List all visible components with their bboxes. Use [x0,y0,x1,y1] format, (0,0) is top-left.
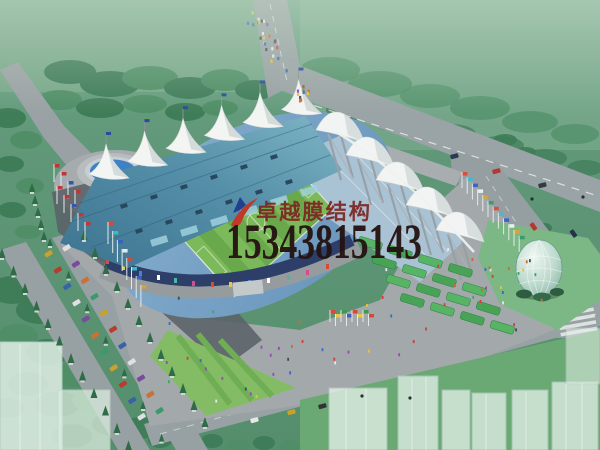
pedestrian [526,260,528,263]
ghost-building [58,390,110,450]
tree-canopy [253,436,275,450]
flag [463,172,468,176]
flag [79,213,84,217]
flag [504,218,509,222]
pedestrian [366,304,368,307]
pedestrian [256,395,258,398]
pedestrian [485,268,487,271]
pedestrian [368,350,370,353]
ghost-building [552,382,598,450]
banner-flag [174,278,177,283]
pedestrian [508,267,510,270]
flag [509,224,514,228]
pedestrian [289,371,291,374]
flag [478,189,483,193]
pedestrian [489,266,491,269]
banner-flag [211,282,214,287]
flag [358,314,363,318]
pedestrian [261,346,263,349]
banner-flag [157,275,160,280]
flag [132,267,137,271]
flag [515,230,520,234]
pedestrian [471,258,473,261]
ghost-building [472,393,506,450]
ghost-building [566,328,600,384]
banner-flag [306,270,309,275]
flag [123,249,128,253]
flag [342,310,347,314]
flag [127,258,132,262]
tree-canopy [10,131,42,149]
pedestrian [187,357,189,360]
pedestrian [454,284,456,287]
pedestrian [166,361,168,364]
pedestrian [529,259,531,262]
flag [76,190,81,194]
banner-flag [139,271,142,276]
stadium-rendering-scene: 卓越膜结构 15343815143 [0,0,600,450]
ghost-building [329,388,387,450]
flag [520,236,525,240]
flag [483,195,488,199]
pedestrian [444,303,446,306]
pedestrian [299,320,301,323]
pedestrian [413,340,415,343]
pedestrian [534,273,536,276]
pedestrian [200,359,202,362]
pedestrian [492,275,494,278]
flag [364,310,369,314]
pedestrian [480,300,482,303]
pedestrian [205,367,207,370]
ghost-building [442,390,470,450]
ghost-building [512,390,548,450]
flag [473,184,478,188]
pedestrian [522,268,524,271]
flag [336,314,341,318]
flag [55,164,60,168]
pedestrian [333,358,335,361]
dome-base-shrub [516,290,532,299]
flag [137,276,142,280]
pedestrian [447,248,449,251]
flag [72,204,77,208]
pedestrian [418,305,420,308]
pedestrian [513,323,515,326]
tent-flag [145,119,150,122]
pedestrian [291,345,293,348]
flag [65,195,70,199]
flag [109,222,114,226]
pedestrian [270,354,272,357]
top-mist [0,0,600,115]
pedestrian [212,310,214,313]
pedestrian [398,353,400,356]
pedestrian [425,327,427,330]
flag [499,213,504,217]
tree-canopy [15,225,41,239]
pedestrian [485,287,487,290]
flag [489,201,494,205]
pedestrian [518,272,520,275]
tent-flag [106,132,111,135]
flag [118,240,123,244]
ghost-building [398,376,438,450]
rendering-canvas: 卓越膜结构 15343815143 [0,0,600,450]
pedestrian [515,328,517,331]
pedestrian [221,377,223,380]
flag [331,310,336,314]
flag [86,222,91,226]
pedestrian [437,265,439,268]
pedestrian [334,361,336,364]
motorbike [360,394,363,397]
motorbike [530,197,533,200]
flag [113,231,118,235]
pedestrian [178,297,180,300]
pedestrian [272,373,274,376]
flag [353,310,358,314]
pedestrian [278,347,280,350]
flag [347,314,352,318]
pedestrian [245,388,247,391]
flag [62,172,67,176]
pedestrian [287,358,289,361]
pedestrian [481,289,483,292]
banner-flag [229,282,232,287]
tree-canopy [551,124,599,144]
pedestrian [250,392,252,395]
pedestrian [169,322,171,325]
flag [141,285,146,289]
flag [369,314,374,318]
pedestrian [348,351,350,354]
pedestrian [302,340,304,343]
pedestrian [322,348,324,351]
motorbike [581,195,584,198]
pedestrian [541,299,543,302]
banner-flag [267,278,270,283]
pedestrian [168,380,170,383]
pedestrian [502,301,504,304]
pedestrian [215,400,217,403]
watermark-phone-number: 15343815143 [226,213,422,269]
banner-flag [287,275,290,280]
flag [468,178,473,182]
motorbike [408,396,411,399]
flag [69,181,74,185]
dome-base-shrub [550,288,564,296]
pedestrian [472,296,474,299]
pedestrian [502,291,504,294]
flag [58,186,63,190]
ghost-building [0,342,62,450]
banner-flag [192,281,195,286]
pedestrian [500,286,502,289]
flag [494,207,499,211]
pedestrian [390,314,392,317]
pedestrian [382,296,384,299]
